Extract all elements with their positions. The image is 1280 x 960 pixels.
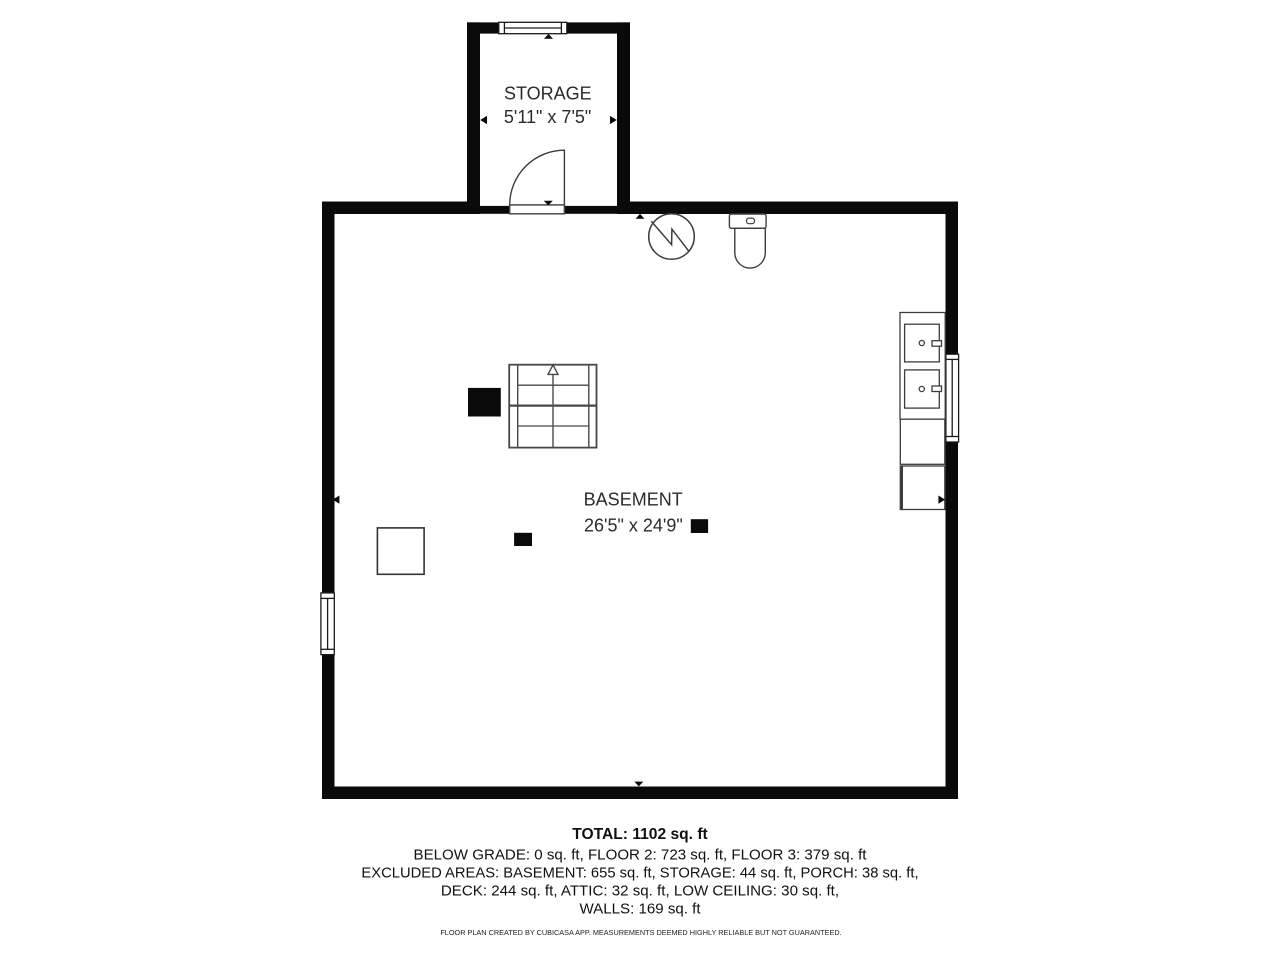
- svg-text:BELOW GRADE: 0 sq. ft, FLOOR 2: BELOW GRADE: 0 sq. ft, FLOOR 2: 723 sq. …: [414, 846, 868, 863]
- svg-text:5'11" x 7'5": 5'11" x 7'5": [504, 107, 591, 127]
- svg-text:FLOOR PLAN CREATED BY CUBICASA: FLOOR PLAN CREATED BY CUBICASA APP. MEAS…: [440, 928, 841, 937]
- svg-text:EXCLUDED AREAS: BASEMENT: 655: EXCLUDED AREAS: BASEMENT: 655 sq. ft, ST…: [361, 866, 918, 882]
- svg-text:WALLS: 169 sq. ft: WALLS: 169 sq. ft: [579, 901, 701, 918]
- svg-text:26'5" x 24'9": 26'5" x 24'9": [584, 516, 683, 536]
- svg-text:TOTAL: 1102 sq. ft: TOTAL: 1102 sq. ft: [572, 826, 707, 843]
- svg-text:BASEMENT: BASEMENT: [584, 489, 683, 509]
- svg-text:STORAGE: STORAGE: [504, 84, 592, 104]
- svg-text:DECK: 244 sq. ft, ATTIC: 32 sq: DECK: 244 sq. ft, ATTIC: 32 sq. ft, LOW …: [441, 883, 839, 900]
